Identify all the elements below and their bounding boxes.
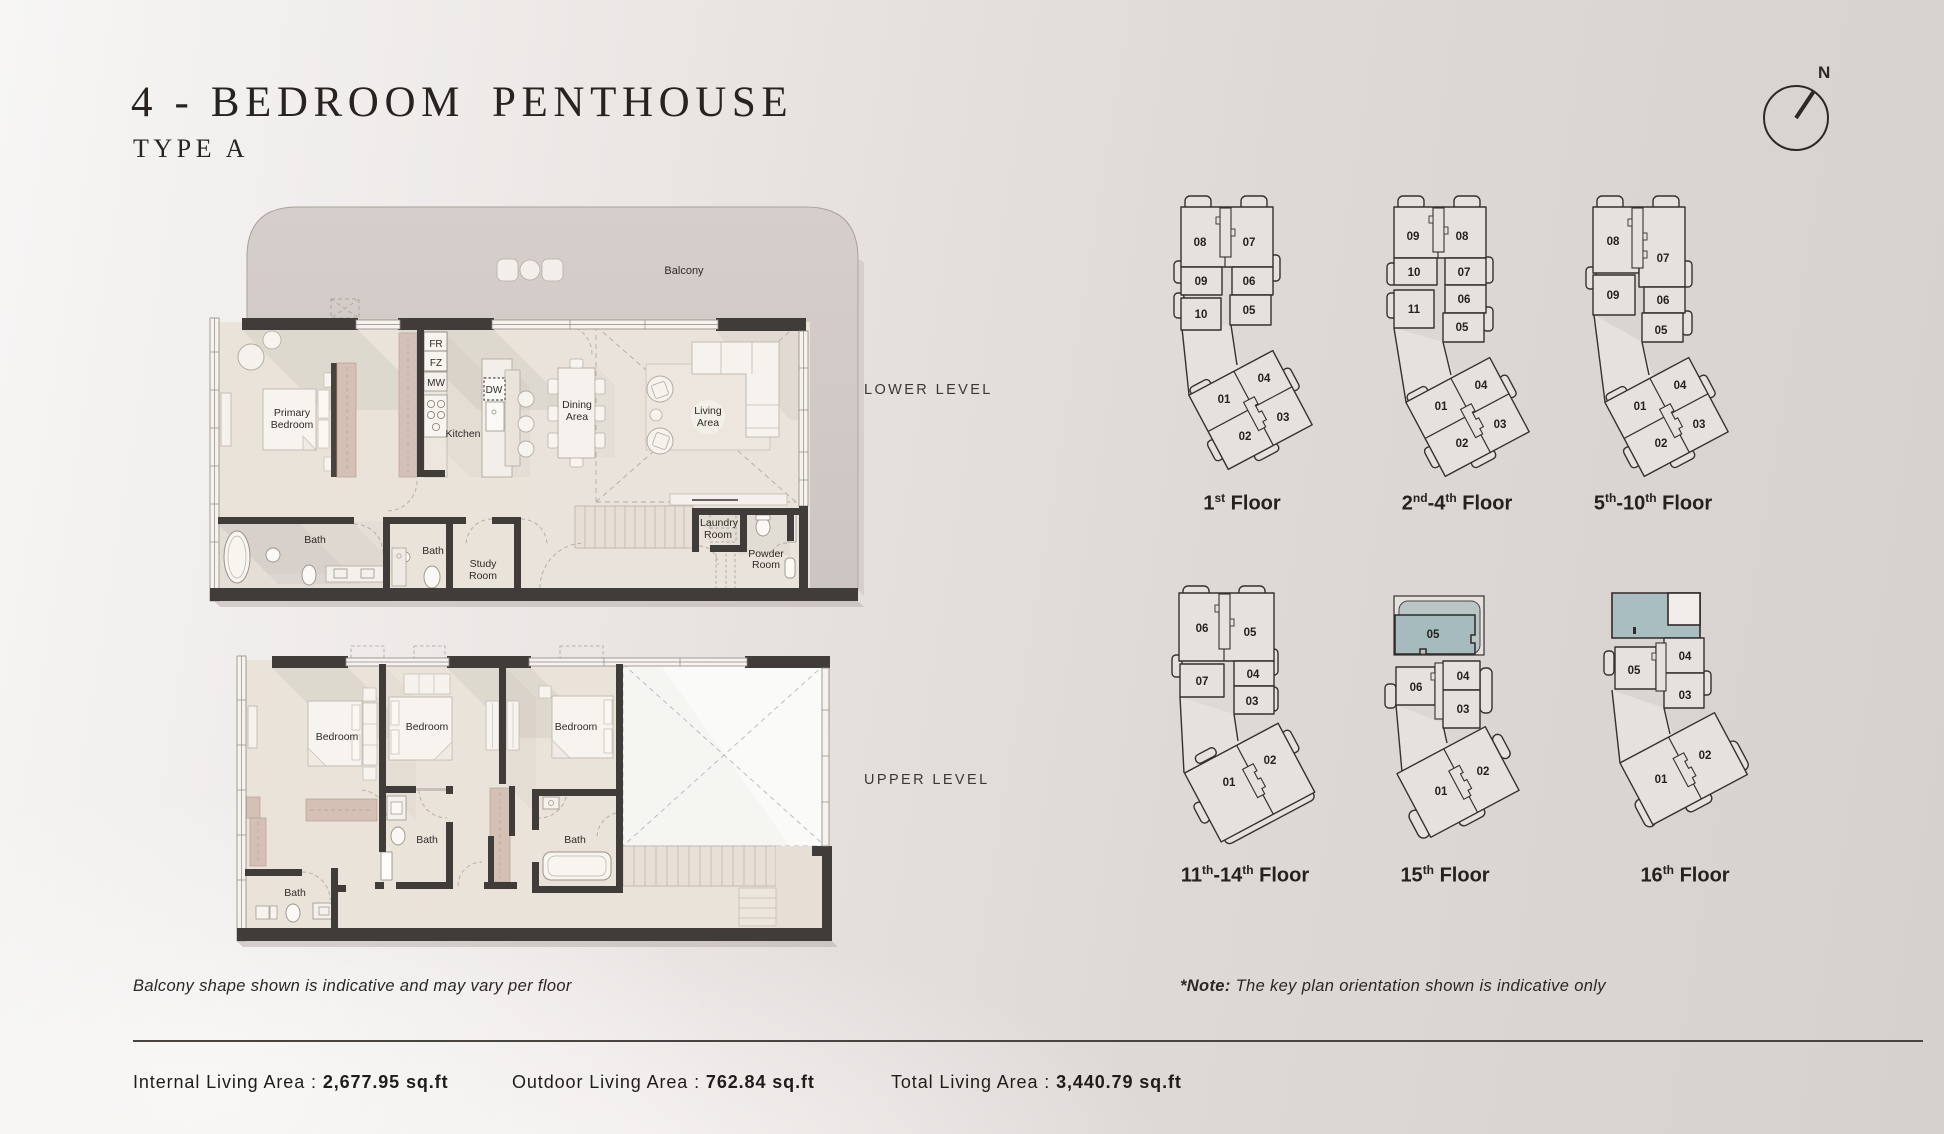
svg-text:Study: Study [470, 558, 498, 570]
svg-text:Primary: Primary [274, 407, 311, 419]
svg-text:Area: Area [566, 411, 588, 423]
svg-text:05: 05 [1456, 322, 1469, 334]
svg-text:Room: Room [469, 570, 497, 582]
svg-text:03: 03 [1679, 690, 1692, 702]
svg-text:04: 04 [1258, 373, 1271, 385]
svg-text:06: 06 [1196, 623, 1209, 635]
svg-text:01: 01 [1634, 401, 1647, 413]
svg-text:Living: Living [694, 405, 722, 417]
svg-text:10: 10 [1408, 267, 1421, 279]
svg-text:Bedroom: Bedroom [555, 721, 598, 733]
svg-text:03: 03 [1693, 419, 1706, 431]
svg-text:08: 08 [1194, 237, 1207, 249]
svg-text:07: 07 [1657, 253, 1670, 265]
svg-text:Room: Room [704, 529, 732, 541]
svg-text:FZ: FZ [430, 358, 442, 369]
svg-text:Room: Room [752, 559, 780, 571]
svg-text:09: 09 [1607, 290, 1620, 302]
svg-text:02: 02 [1239, 431, 1252, 443]
svg-text:03: 03 [1457, 704, 1470, 716]
svg-text:Bedroom: Bedroom [316, 731, 359, 743]
svg-text:02: 02 [1655, 438, 1668, 450]
svg-text:09: 09 [1407, 231, 1420, 243]
svg-text:Bedroom: Bedroom [406, 721, 449, 733]
svg-text:02: 02 [1477, 766, 1490, 778]
svg-text:03: 03 [1494, 419, 1507, 431]
svg-text:04: 04 [1475, 380, 1488, 392]
svg-text:Bath: Bath [304, 534, 326, 546]
svg-text:04: 04 [1247, 669, 1260, 681]
svg-text:Bath: Bath [284, 887, 306, 899]
svg-text:07: 07 [1243, 237, 1256, 249]
svg-text:FR: FR [429, 339, 442, 350]
svg-text:04: 04 [1679, 651, 1692, 663]
svg-text:09: 09 [1195, 276, 1208, 288]
svg-text:08: 08 [1607, 236, 1620, 248]
svg-text:02: 02 [1264, 755, 1277, 767]
svg-text:08: 08 [1456, 231, 1469, 243]
svg-text:05: 05 [1243, 305, 1256, 317]
svg-text:Bath: Bath [564, 834, 586, 846]
svg-text:01: 01 [1435, 786, 1448, 798]
svg-text:06: 06 [1410, 682, 1423, 694]
svg-text:DW: DW [486, 385, 503, 396]
svg-text:Bath: Bath [422, 545, 444, 557]
svg-text:Bath: Bath [416, 834, 438, 846]
svg-text:02: 02 [1699, 750, 1712, 762]
svg-text:05: 05 [1427, 629, 1440, 641]
svg-text:04: 04 [1674, 380, 1687, 392]
svg-text:05: 05 [1628, 665, 1641, 677]
svg-text:N: N [1818, 63, 1830, 82]
svg-text:MW: MW [427, 378, 445, 389]
svg-text:Laundry: Laundry [700, 517, 739, 529]
svg-text:04: 04 [1457, 671, 1470, 683]
svg-text:Dining: Dining [562, 399, 592, 411]
svg-text:06: 06 [1243, 276, 1256, 288]
svg-text:01: 01 [1655, 774, 1668, 786]
svg-text:02: 02 [1456, 438, 1469, 450]
svg-text:10: 10 [1195, 309, 1208, 321]
svg-text:07: 07 [1196, 676, 1209, 688]
svg-text:01: 01 [1218, 394, 1231, 406]
svg-text:05: 05 [1244, 627, 1257, 639]
svg-text:Balcony: Balcony [664, 265, 704, 277]
svg-text:Kitchen: Kitchen [445, 428, 480, 440]
svg-text:01: 01 [1435, 401, 1448, 413]
svg-text:Bedroom: Bedroom [271, 419, 314, 431]
svg-text:Area: Area [697, 417, 719, 429]
svg-text:06: 06 [1458, 294, 1471, 306]
svg-text:01: 01 [1223, 777, 1236, 789]
svg-text:07: 07 [1458, 267, 1471, 279]
svg-text:06: 06 [1657, 295, 1670, 307]
svg-text:11: 11 [1408, 304, 1421, 316]
svg-text:03: 03 [1277, 412, 1290, 424]
svg-text:03: 03 [1246, 696, 1259, 708]
svg-text:05: 05 [1655, 325, 1668, 337]
